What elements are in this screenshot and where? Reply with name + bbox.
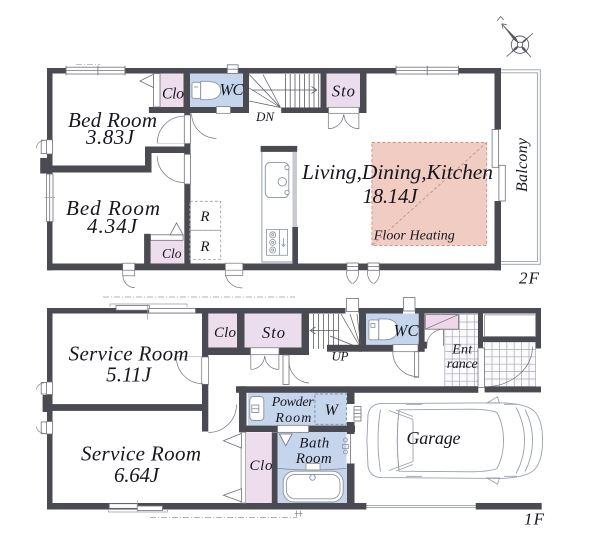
svg-text:R: R bbox=[199, 209, 209, 225]
svg-text:Clo: Clo bbox=[162, 86, 184, 103]
svg-text:WC: WC bbox=[394, 321, 420, 340]
svg-text:Sto: Sto bbox=[262, 323, 285, 342]
svg-text:Clo: Clo bbox=[214, 325, 237, 341]
svg-text:2F: 2F bbox=[519, 269, 540, 288]
svg-text:6.64J: 6.64J bbox=[114, 463, 161, 487]
svg-text:5.11J: 5.11J bbox=[106, 363, 153, 387]
svg-text:Garage: Garage bbox=[407, 428, 461, 448]
svg-text:Sto: Sto bbox=[332, 82, 355, 101]
svg-text:Floor Heating: Floor Heating bbox=[373, 229, 455, 244]
svg-text:Service Room: Service Room bbox=[81, 442, 201, 466]
svg-text:WC: WC bbox=[220, 80, 245, 99]
svg-text:Room: Room bbox=[295, 451, 332, 467]
svg-text:3.83J: 3.83J bbox=[85, 125, 136, 149]
svg-text:Bath: Bath bbox=[299, 436, 329, 452]
svg-text:Clo: Clo bbox=[250, 458, 274, 474]
svg-text:DN: DN bbox=[255, 109, 275, 124]
svg-text:Room: Room bbox=[274, 411, 311, 426]
svg-text:rance: rance bbox=[447, 357, 478, 372]
svg-text:Clo: Clo bbox=[162, 246, 182, 261]
svg-text:UP: UP bbox=[332, 349, 349, 364]
svg-text:4.34J: 4.34J bbox=[87, 214, 139, 238]
svg-text:R: R bbox=[199, 239, 209, 255]
svg-text:Living,Dining,Kitchen: Living,Dining,Kitchen bbox=[301, 160, 493, 184]
svg-text:Balcony: Balcony bbox=[514, 137, 531, 192]
svg-text:Powder: Powder bbox=[271, 395, 315, 410]
svg-text:W: W bbox=[325, 402, 340, 419]
svg-text:18.14J: 18.14J bbox=[363, 184, 420, 208]
svg-text:Ent: Ent bbox=[451, 343, 473, 358]
svg-text:1F: 1F bbox=[524, 510, 545, 529]
